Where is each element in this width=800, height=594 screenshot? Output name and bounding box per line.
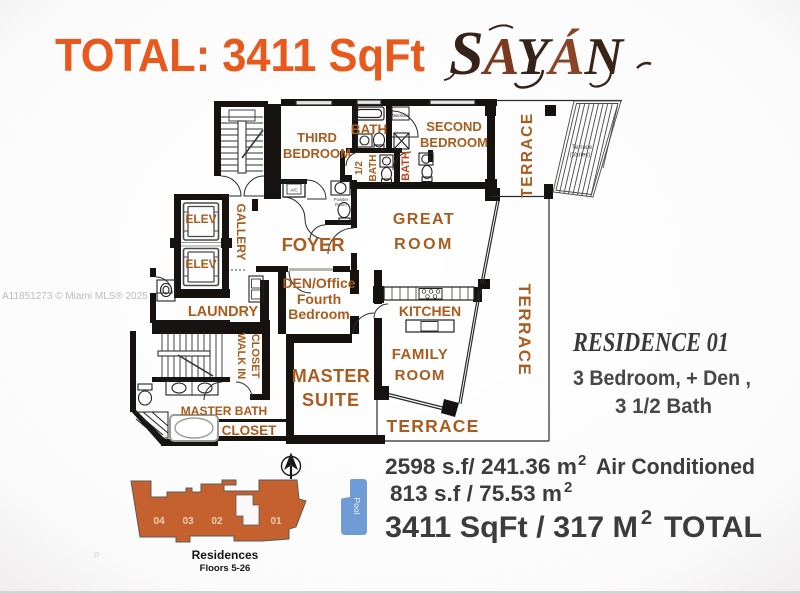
- svg-text:2598 s.f/ 241.36 m: 2598 s.f/ 241.36 m: [385, 454, 577, 479]
- svg-text:GREAT: GREAT: [393, 211, 455, 228]
- svg-text:LAUNDRY: LAUNDRY: [188, 304, 259, 320]
- svg-text:KITCHEN: KITCHEN: [399, 303, 461, 319]
- svg-text:BEDROOM: BEDROOM: [283, 146, 351, 161]
- svg-text:2: 2: [564, 479, 572, 496]
- svg-text:Fourth: Fourth: [297, 291, 341, 307]
- svg-text:BATH: BATH: [400, 151, 412, 181]
- svg-text:ROOM: ROOM: [394, 236, 454, 253]
- svg-text:CLOSET: CLOSET: [222, 423, 278, 438]
- svg-text:A11851273 © Miami MLS® 2025: A11851273 © Miami MLS® 2025: [2, 291, 148, 302]
- svg-text:ELEV: ELEV: [185, 212, 216, 226]
- svg-text:SUITE: SUITE: [302, 390, 360, 410]
- svg-text:SAYÁN: SAYÁN: [449, 20, 625, 88]
- svg-text:813 s.f / 75.53 m: 813 s.f / 75.53 m: [390, 481, 562, 506]
- svg-text:Air Conditioned: Air Conditioned: [596, 454, 755, 479]
- svg-text:3 Bedroom, + Den ,: 3 Bedroom, + Den ,: [573, 366, 751, 390]
- svg-text:01: 01: [270, 516, 282, 527]
- svg-text:Room: Room: [335, 202, 347, 207]
- svg-text:04: 04: [153, 516, 165, 527]
- svg-text:TERRACE: TERRACE: [515, 284, 534, 377]
- svg-text:FOYER: FOYER: [282, 234, 345, 255]
- svg-text:FAMILY: FAMILY: [392, 346, 449, 363]
- svg-text:A/C: A/C: [290, 188, 298, 193]
- svg-text:MASTER: MASTER: [292, 366, 370, 386]
- svg-text:BEDROOM: BEDROOM: [420, 135, 488, 150]
- svg-text:TERRACE: TERRACE: [387, 416, 480, 436]
- svg-text:02: 02: [211, 516, 223, 527]
- svg-text:CLOSET: CLOSET: [249, 334, 261, 379]
- svg-text:GALLERY: GALLERY: [234, 204, 248, 261]
- svg-text:Pool: Pool: [352, 497, 362, 514]
- svg-text:TOTAL: TOTAL: [664, 511, 762, 544]
- svg-text:WALK IN: WALK IN: [235, 333, 247, 379]
- svg-text:BATH: BATH: [368, 154, 379, 181]
- svg-text:Residences: Residences: [192, 548, 259, 562]
- svg-text:TERRACE: TERRACE: [519, 112, 536, 197]
- svg-text:(Varies): (Varies): [570, 153, 591, 159]
- svg-text:ELEV: ELEV: [185, 257, 216, 271]
- svg-text:Bedroom: Bedroom: [288, 306, 349, 322]
- svg-text:03: 03: [182, 516, 194, 527]
- svg-text:MASTER BATH: MASTER BATH: [181, 404, 267, 418]
- svg-text:SECOND: SECOND: [426, 119, 482, 134]
- svg-text:Terrace: Terrace: [572, 145, 593, 151]
- svg-text:3 1/2 Bath: 3 1/2 Bath: [615, 394, 712, 418]
- svg-text:THIRD: THIRD: [297, 130, 337, 145]
- svg-text:1/2: 1/2: [354, 161, 365, 175]
- svg-text:3411 SqFt / 317 M: 3411 SqFt / 317 M: [385, 511, 638, 544]
- svg-text:⌕: ⌕: [93, 546, 100, 561]
- svg-text:2: 2: [641, 507, 652, 529]
- svg-text:TOTAL: 3411 SqFt: TOTAL: 3411 SqFt: [55, 29, 425, 81]
- svg-text:2: 2: [578, 452, 586, 469]
- svg-text:BATH: BATH: [351, 122, 388, 137]
- svg-text:Floors 5-26: Floors 5-26: [200, 563, 251, 574]
- svg-text:ROOM: ROOM: [395, 367, 446, 384]
- svg-text:RESIDENCE 01: RESIDENCE 01: [572, 327, 729, 357]
- svg-text:DEN/Office: DEN/Office: [282, 275, 355, 291]
